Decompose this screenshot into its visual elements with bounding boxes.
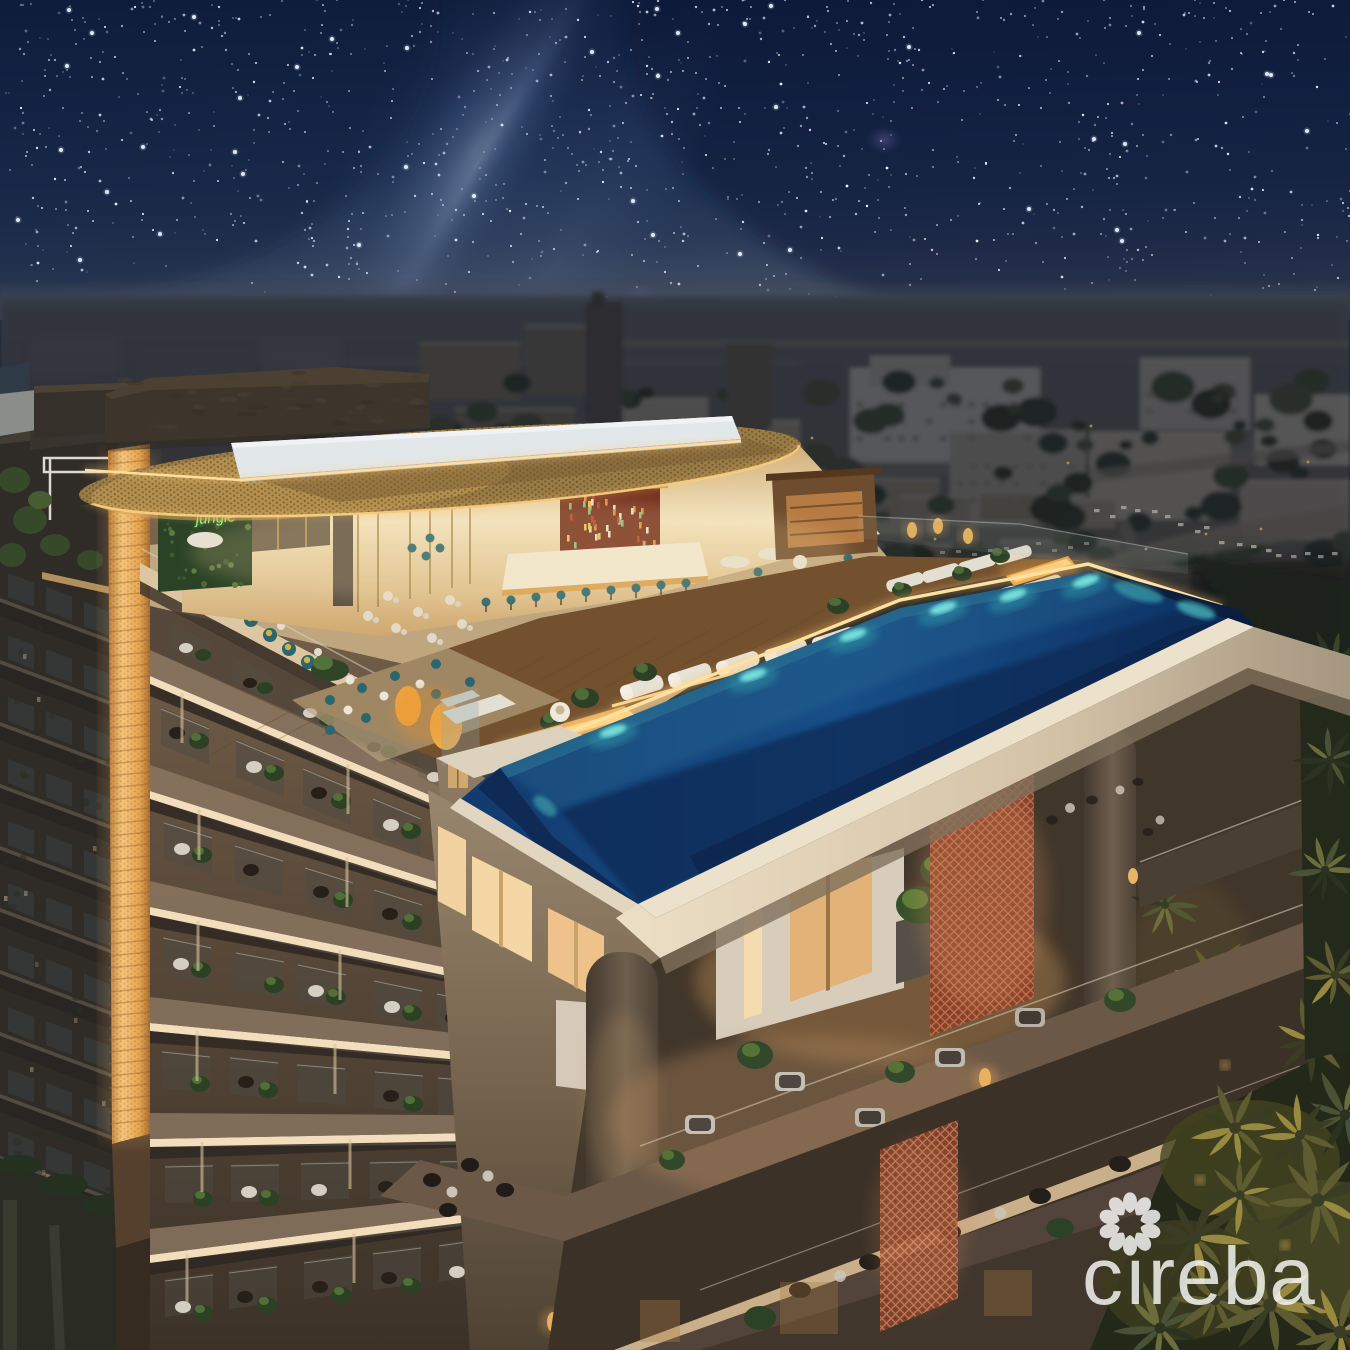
svg-text:cıreba: cıreba [1082,1231,1316,1322]
